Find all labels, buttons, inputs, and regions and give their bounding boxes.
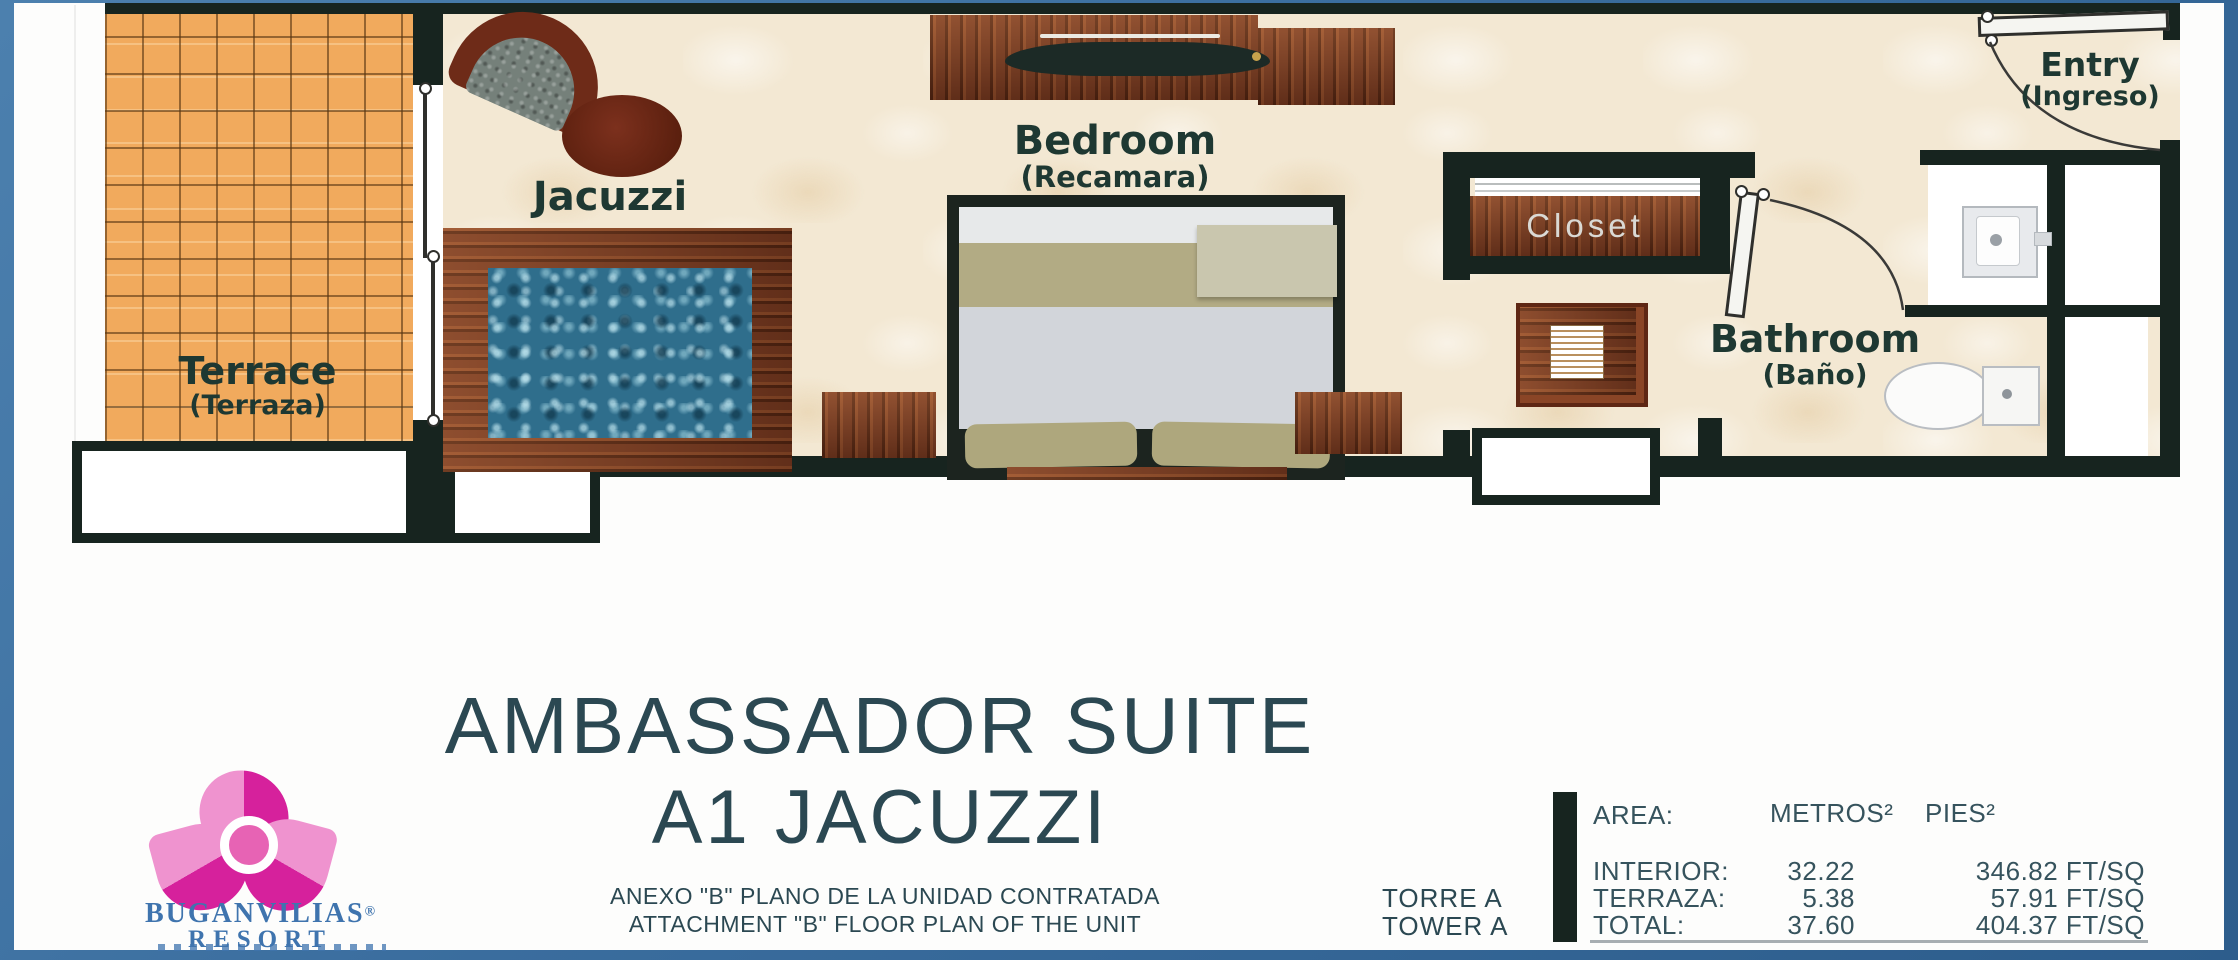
tower-label-en: TOWER A (1382, 912, 1562, 940)
terrace-label-es: (Terraza) (150, 392, 365, 420)
room-label-closet: Closet (1470, 196, 1700, 256)
table-row-label: TOTAL: (1593, 910, 1685, 941)
logo-tagline-fragment (158, 944, 386, 951)
table-header-area: AREA: (1593, 800, 1674, 831)
room-label-entry: Entry (Ingreso) (1990, 48, 2190, 111)
door-swing-arcs (0, 0, 2238, 560)
attachment-note: ANEXO "B" PLANO DE LA UNIDAD CONTRATADA … (435, 882, 1335, 938)
entry-label-es: (Ingreso) (1990, 83, 2190, 111)
flower-center-ring (220, 816, 278, 874)
floor-plan: Terrace (Terraza) Jacuzzi Bedroom (Recam… (0, 0, 2238, 560)
bedroom-label-es: (Recamara) (990, 162, 1240, 192)
room-label-bedroom: Bedroom (Recamara) (990, 120, 1240, 192)
room-label-terrace: Terrace (Terraza) (150, 352, 365, 420)
suite-title: AMBASSADOR SUITE A1 JACUZZI (430, 680, 1330, 861)
room-label-jacuzzi: Jacuzzi (500, 176, 720, 218)
bathroom-label-en: Bathroom (1690, 320, 1940, 360)
terrace-label-en: Terrace (150, 352, 365, 392)
bedroom-label-en: Bedroom (990, 120, 1240, 162)
attachment-note-es: ANEXO "B" PLANO DE LA UNIDAD CONTRATADA (435, 882, 1335, 910)
table-header-metros: METROS² (1770, 798, 1893, 829)
room-label-bathroom: Bathroom (Baño) (1690, 320, 1940, 389)
bathroom-door-arc (1770, 200, 1903, 310)
tower-label: TORRE A TOWER A (1382, 884, 1562, 940)
suite-title-line1: AMBASSADOR SUITE (430, 680, 1330, 772)
attachment-note-en: ATTACHMENT "B" FLOOR PLAN OF THE UNIT (435, 910, 1335, 938)
brand-name: BUGANVILIAS (145, 898, 365, 929)
table-row-metros: 37.60 (1745, 910, 1855, 941)
logo-flower (160, 768, 330, 898)
table-row-pies: 404.37 FT/SQ (1900, 910, 2145, 941)
bathroom-label-es: (Baño) (1690, 360, 1940, 389)
entry-label-en: Entry (1990, 48, 2190, 83)
registered-mark: ® (365, 905, 375, 920)
table-underline (1590, 940, 2148, 943)
table-divider-bar (1553, 792, 1577, 942)
table-header-pies: PIES² (1925, 798, 1995, 829)
suite-title-line2: A1 JACUZZI (430, 774, 1330, 861)
tower-label-es: TORRE A (1382, 884, 1562, 912)
